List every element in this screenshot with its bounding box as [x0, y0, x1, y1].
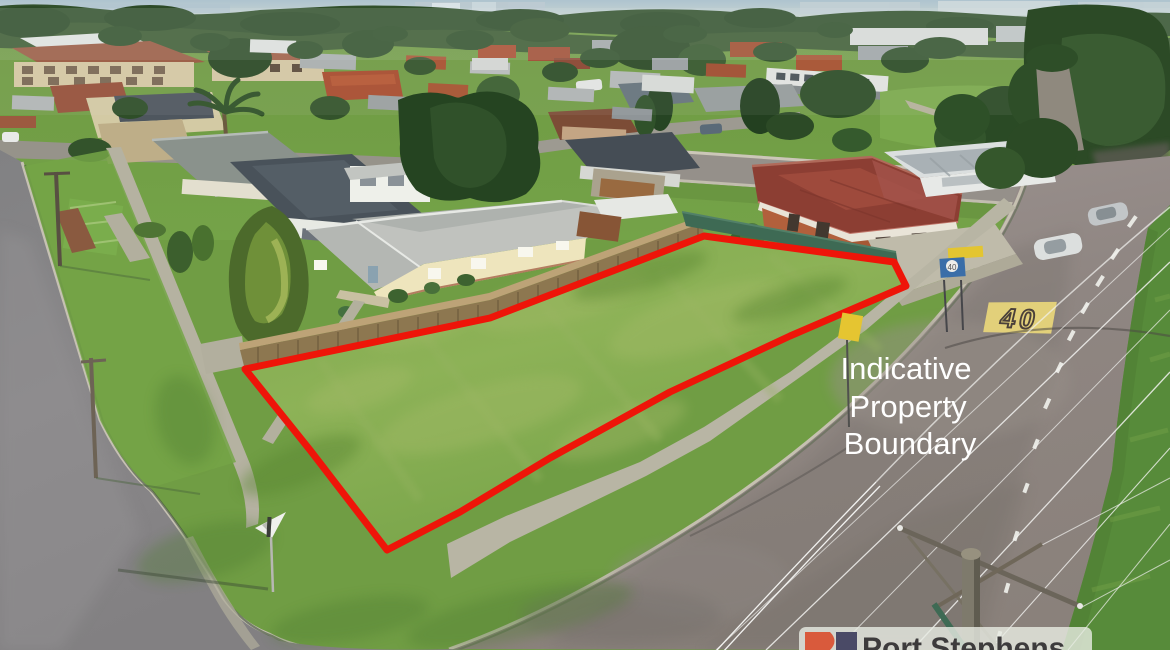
- svg-text:Indicative: Indicative: [841, 351, 972, 386]
- svg-text:40: 40: [948, 263, 957, 272]
- svg-text:Boundary: Boundary: [844, 426, 977, 461]
- svg-text:Property: Property: [849, 389, 967, 424]
- svg-text:Port Stephens: Port Stephens: [862, 632, 1065, 650]
